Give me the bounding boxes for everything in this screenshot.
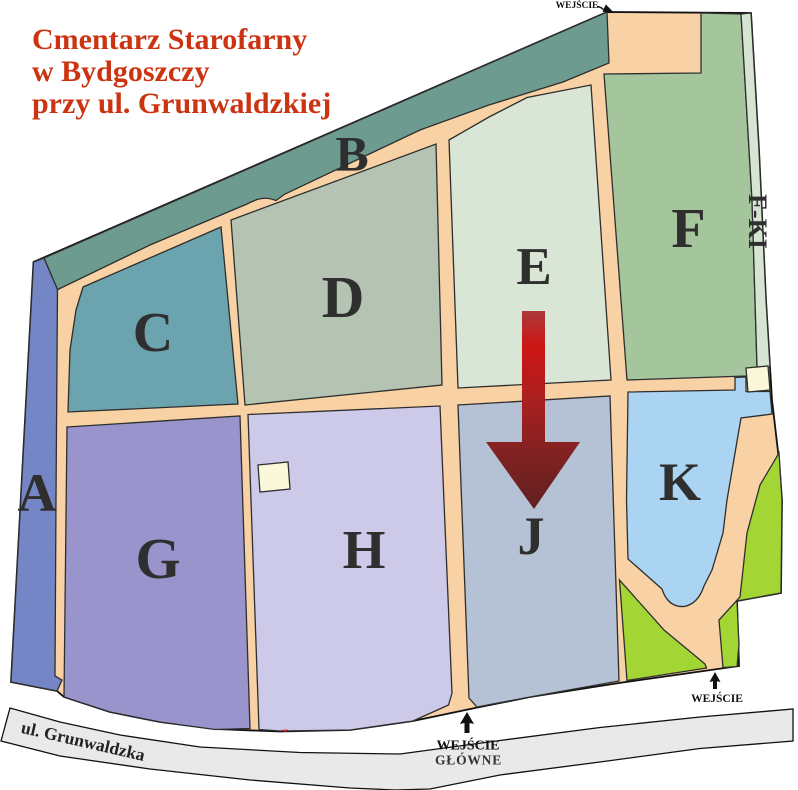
- svg-text:Cmentarz Starofarny: Cmentarz Starofarny: [32, 23, 307, 56]
- svg-text:przy ul. Grunwaldzkiej: przy ul. Grunwaldzkiej: [32, 87, 331, 120]
- svg-text:H: H: [343, 519, 386, 580]
- svg-text:A: A: [18, 463, 57, 523]
- svg-text:C: C: [133, 302, 173, 364]
- svg-text:WEJŚCIE: WEJŚCIE: [436, 737, 499, 754]
- svg-text:E: E: [516, 238, 551, 296]
- svg-text:J: J: [518, 506, 545, 566]
- svg-text:F-KI: F-KI: [743, 194, 772, 249]
- svg-text:w Bydgoszczy: w Bydgoszczy: [32, 55, 209, 88]
- svg-text:B: B: [335, 126, 368, 182]
- svg-text:GŁÓWNE: GŁÓWNE: [435, 753, 502, 768]
- svg-text:WEJŚCIE: WEJŚCIE: [556, 0, 599, 11]
- svg-text:G: G: [135, 526, 180, 591]
- svg-text:F: F: [671, 198, 705, 260]
- svg-text:K: K: [659, 452, 701, 512]
- svg-text:D: D: [322, 264, 365, 330]
- svg-text:WEJŚCIE: WEJŚCIE: [691, 691, 743, 705]
